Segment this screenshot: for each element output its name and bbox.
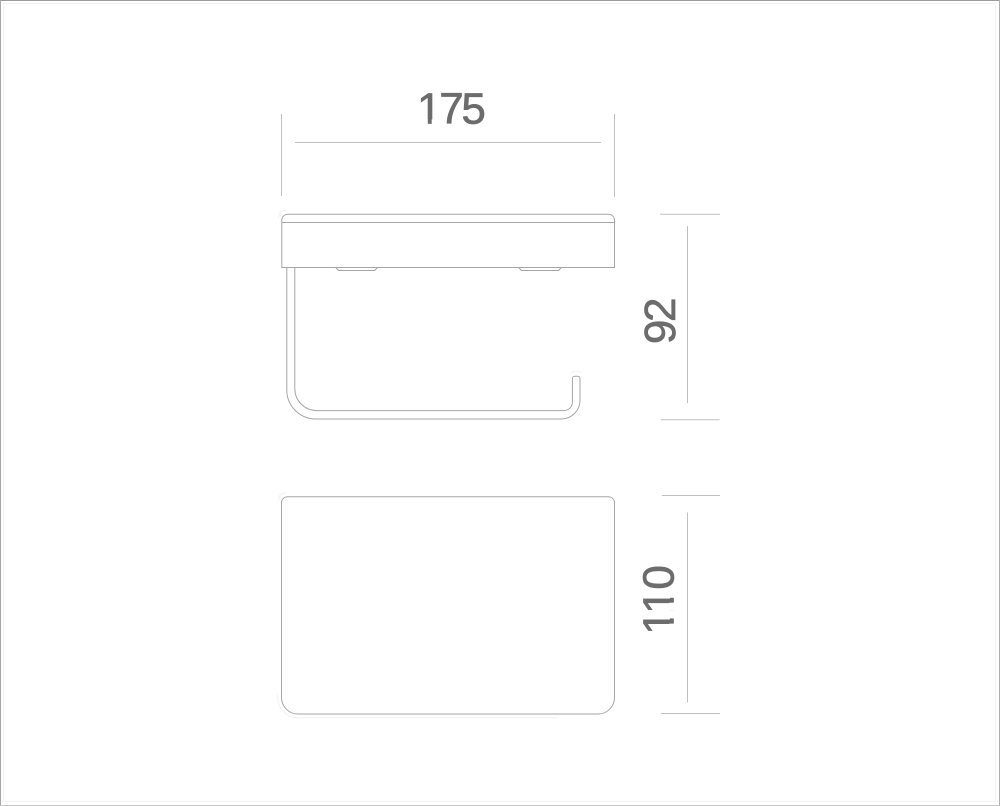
- svg-text:92: 92: [636, 299, 685, 344]
- svg-text:175: 175: [417, 85, 484, 134]
- svg-text:110: 110: [635, 565, 684, 634]
